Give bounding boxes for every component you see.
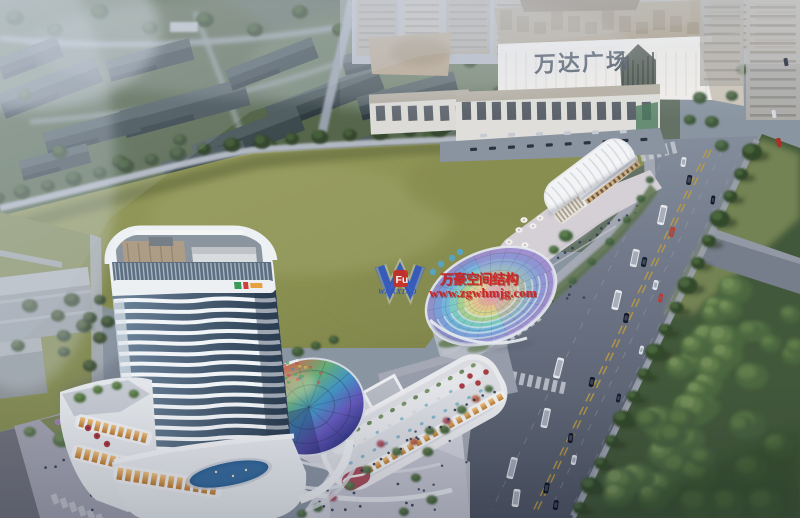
svg-text:WANXIAO: WANXIAO: [378, 287, 417, 296]
svg-text:www.zgwhmjg.com: www.zgwhmjg.com: [429, 285, 537, 300]
svg-text:Fu: Fu: [396, 274, 409, 286]
